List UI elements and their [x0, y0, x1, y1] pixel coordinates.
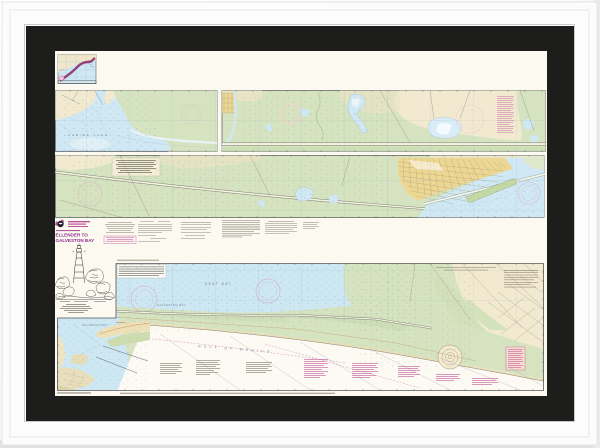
svg-text:GALVESTON BAY: GALVESTON BAY: [56, 238, 95, 243]
